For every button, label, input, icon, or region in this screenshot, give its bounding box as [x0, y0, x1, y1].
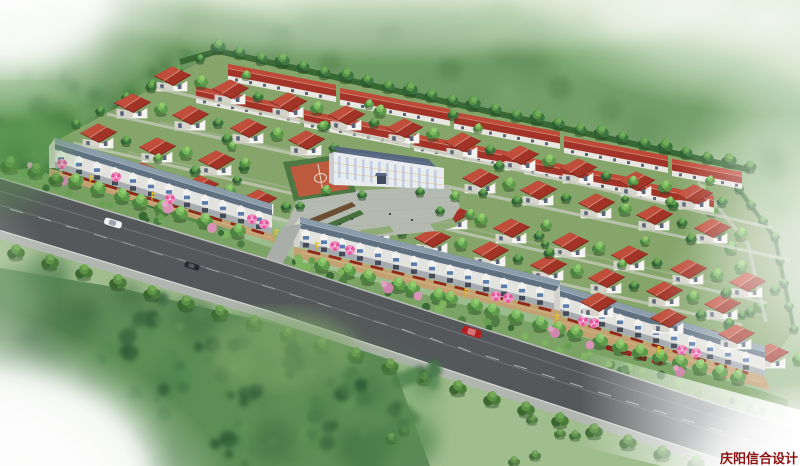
svg-text:庆阳信合设计: 庆阳信合设计	[719, 451, 798, 466]
